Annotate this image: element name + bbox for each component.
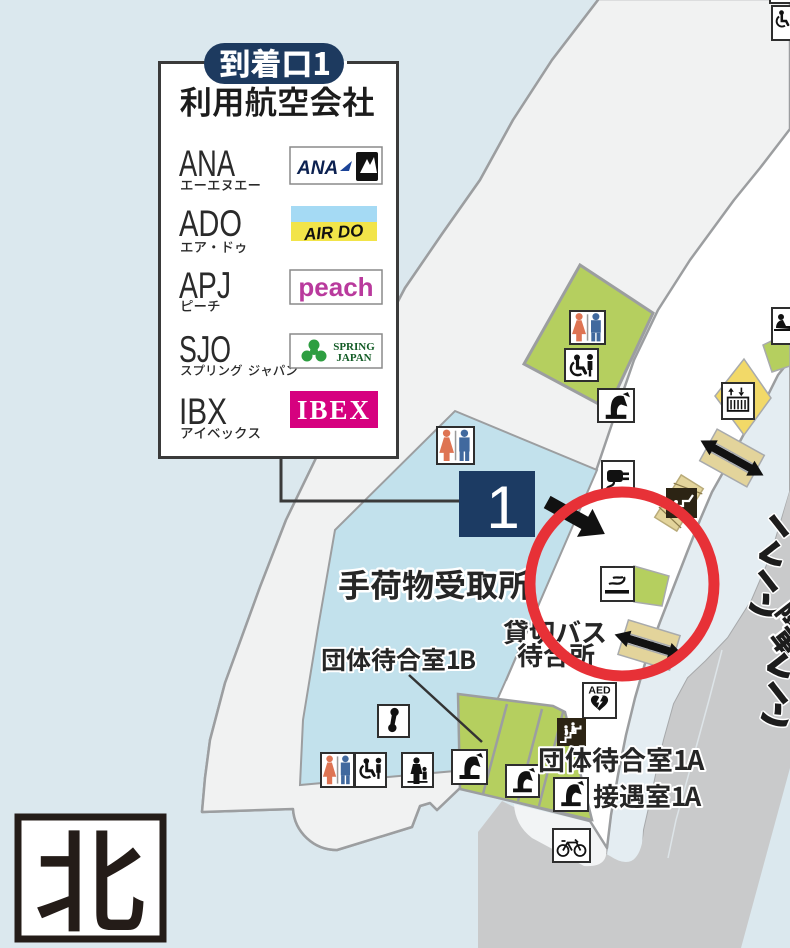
svg-text:IBEX: IBEX: [297, 395, 371, 425]
svg-text:1: 1: [486, 474, 519, 541]
svg-text:AED: AED: [588, 685, 611, 697]
svg-text:IBX: IBX: [179, 391, 227, 432]
svg-text:ADO: ADO: [179, 203, 242, 244]
svg-text:JAPAN: JAPAN: [336, 352, 371, 364]
svg-text:ANA: ANA: [296, 158, 338, 179]
svg-text:ANA: ANA: [179, 143, 235, 184]
svg-text:SJO: SJO: [179, 329, 231, 370]
svg-text:APJ: APJ: [179, 265, 231, 306]
svg-text:peach: peach: [298, 272, 373, 302]
